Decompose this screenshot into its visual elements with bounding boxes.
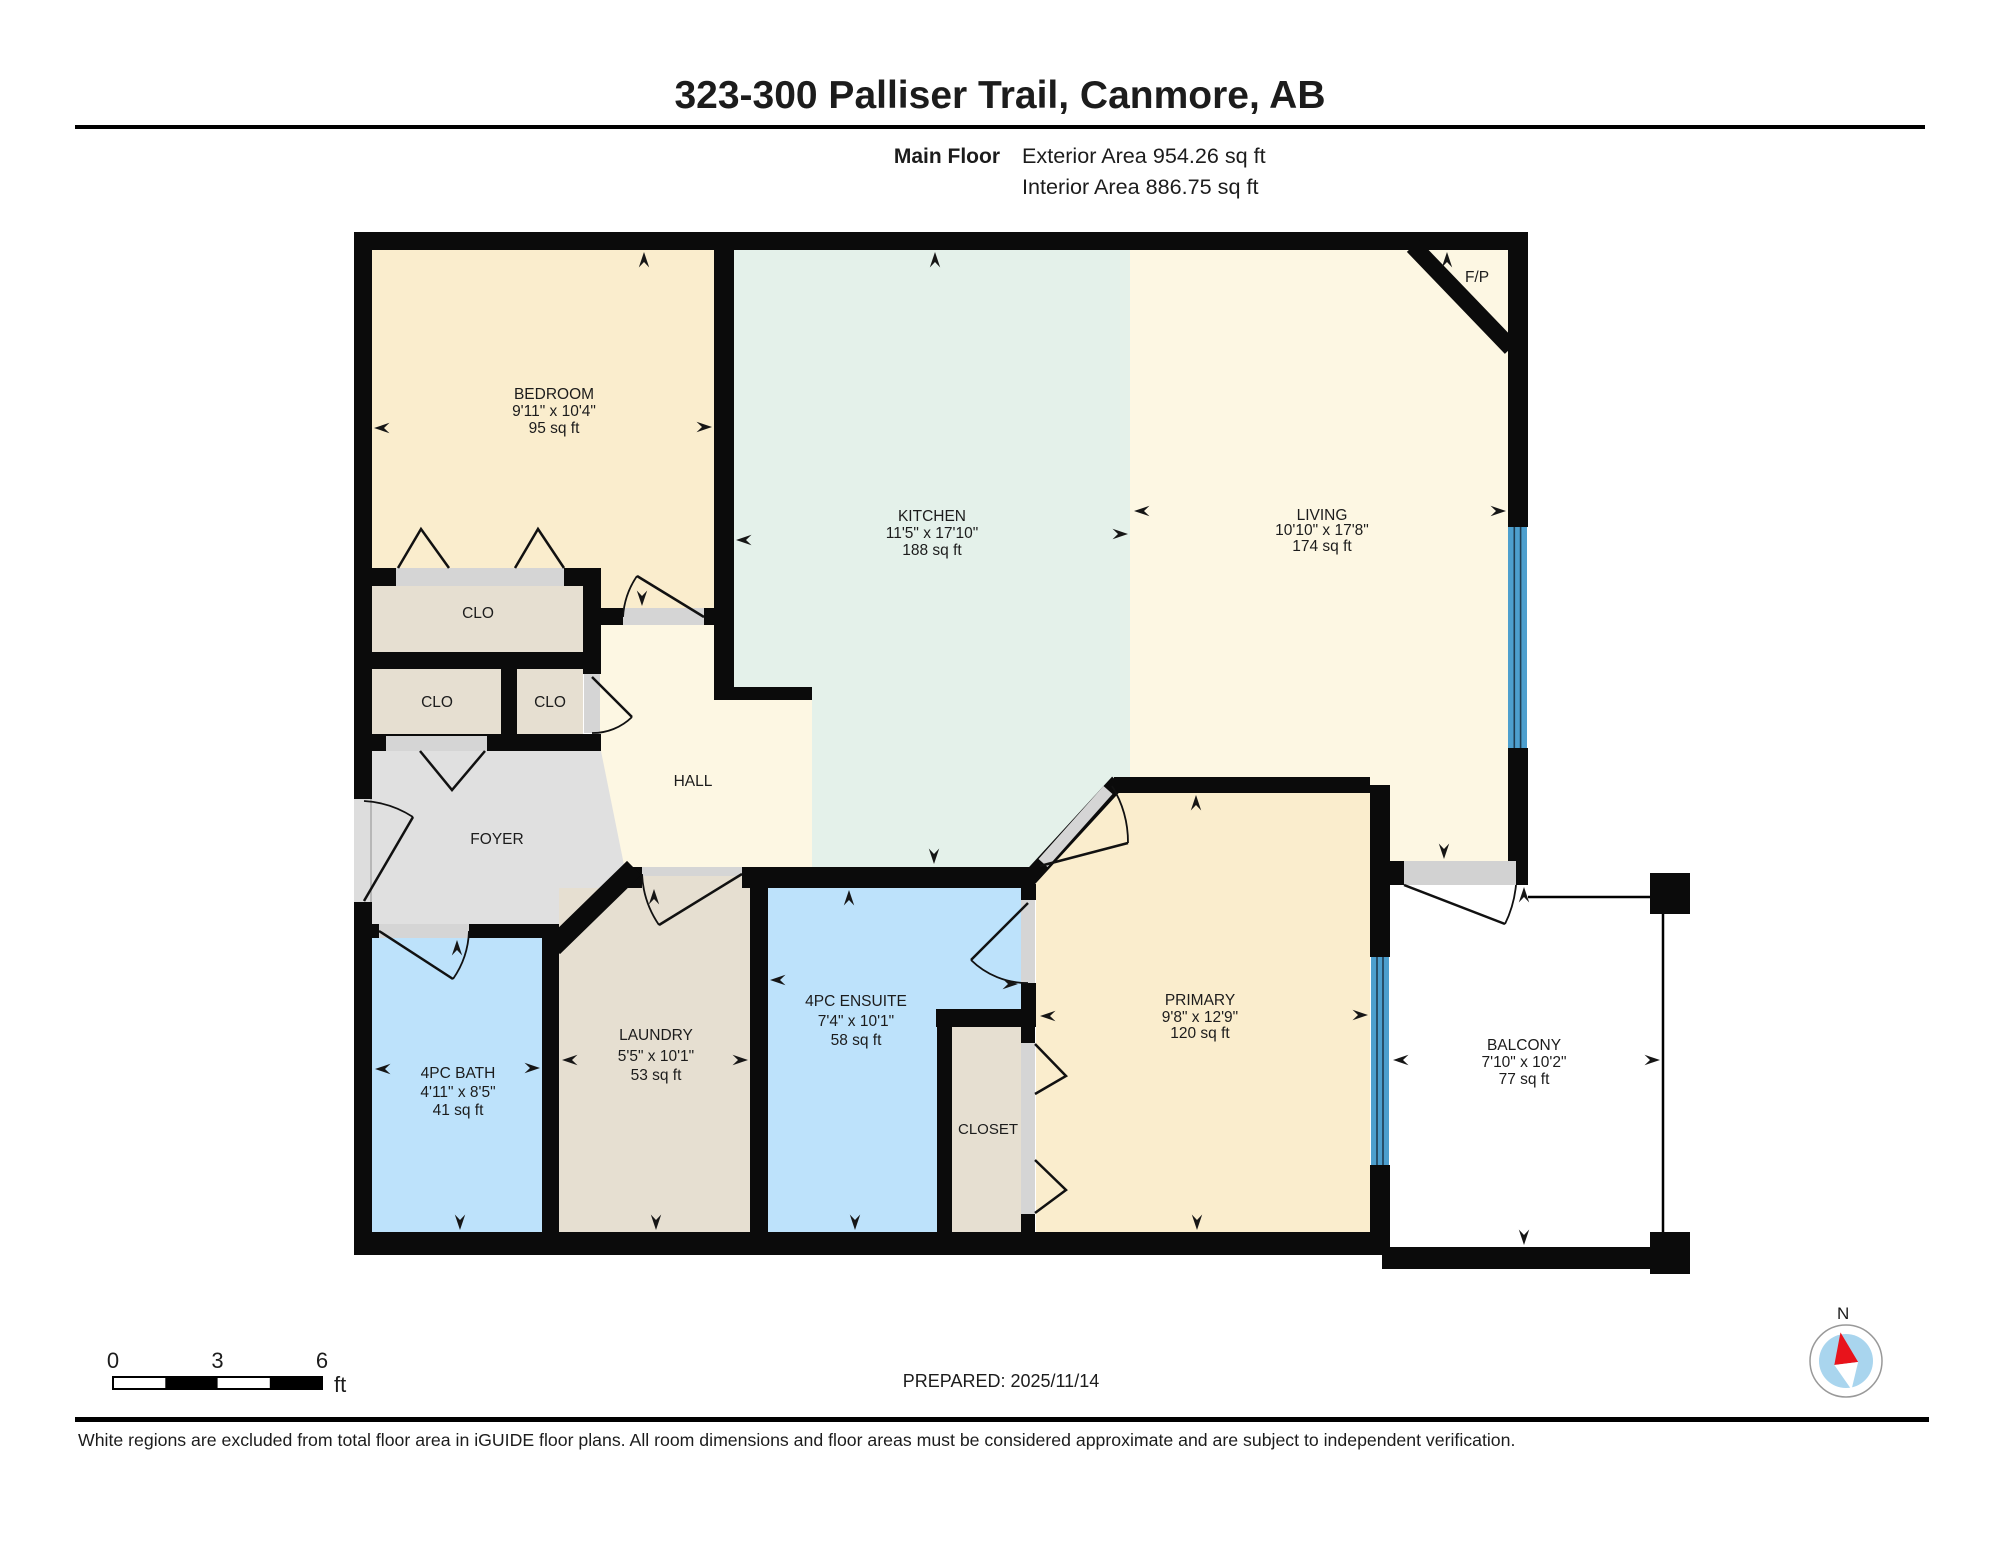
svg-text:6: 6 [316, 1348, 328, 1373]
svg-text:LAUNDRY: LAUNDRY [619, 1027, 693, 1044]
svg-text:10'10" x 17'8": 10'10" x 17'8" [1275, 522, 1369, 539]
svg-text:F/P: F/P [1465, 269, 1489, 286]
svg-text:HALL: HALL [674, 773, 713, 790]
svg-text:Exterior Area 954.26 sq ft: Exterior Area 954.26 sq ft [1022, 143, 1266, 168]
svg-text:KITCHEN: KITCHEN [898, 508, 966, 525]
svg-text:4PC ENSUITE: 4PC ENSUITE [805, 993, 907, 1010]
svg-text:CLO: CLO [462, 605, 494, 622]
svg-text:4'11" x 8'5": 4'11" x 8'5" [420, 1084, 495, 1101]
svg-text:ft: ft [334, 1372, 346, 1397]
svg-text:PRIMARY: PRIMARY [1165, 992, 1235, 1009]
svg-text:9'8" x 12'9": 9'8" x 12'9" [1162, 1009, 1238, 1026]
svg-text:3: 3 [211, 1348, 223, 1373]
svg-text:White regions are excluded fro: White regions are excluded from total fl… [78, 1430, 1515, 1450]
svg-text:7'4" x 10'1": 7'4" x 10'1" [818, 1013, 894, 1030]
svg-text:58 sq ft: 58 sq ft [831, 1032, 883, 1049]
svg-text:CLOSET: CLOSET [958, 1121, 1018, 1138]
svg-text:120 sq ft: 120 sq ft [1170, 1025, 1230, 1042]
svg-text:BALCONY: BALCONY [1487, 1037, 1561, 1054]
svg-text:CLO: CLO [534, 694, 566, 711]
svg-text:188 sq ft: 188 sq ft [902, 542, 962, 559]
svg-text:BEDROOM: BEDROOM [514, 386, 594, 403]
svg-text:4PC BATH: 4PC BATH [421, 1065, 496, 1082]
svg-text:Main Floor: Main Floor [894, 145, 1000, 168]
svg-text:95 sq ft: 95 sq ft [529, 420, 581, 437]
svg-text:323-300 Palliser Trail, Canmor: 323-300 Palliser Trail, Canmore, AB [674, 74, 1325, 117]
svg-text:FOYER: FOYER [470, 831, 523, 848]
svg-text:41 sq ft: 41 sq ft [433, 1102, 485, 1119]
svg-text:11'5" x 17'10": 11'5" x 17'10" [886, 525, 978, 542]
svg-text:9'11" x 10'4": 9'11" x 10'4" [512, 403, 596, 420]
svg-text:Interior Area 886.75 sq ft: Interior Area 886.75 sq ft [1022, 174, 1258, 199]
svg-text:PREPARED: 2025/11/14: PREPARED: 2025/11/14 [903, 1371, 1099, 1391]
svg-text:5'5" x 10'1": 5'5" x 10'1" [618, 1048, 694, 1065]
svg-text:53 sq ft: 53 sq ft [631, 1067, 683, 1084]
svg-text:174 sq ft: 174 sq ft [1292, 538, 1352, 555]
svg-text:7'10" x 10'2": 7'10" x 10'2" [1481, 1054, 1566, 1071]
svg-text:CLO: CLO [421, 694, 453, 711]
svg-text:0: 0 [107, 1348, 119, 1373]
svg-text:N: N [1837, 1304, 1849, 1323]
svg-text:77 sq ft: 77 sq ft [1499, 1071, 1551, 1088]
